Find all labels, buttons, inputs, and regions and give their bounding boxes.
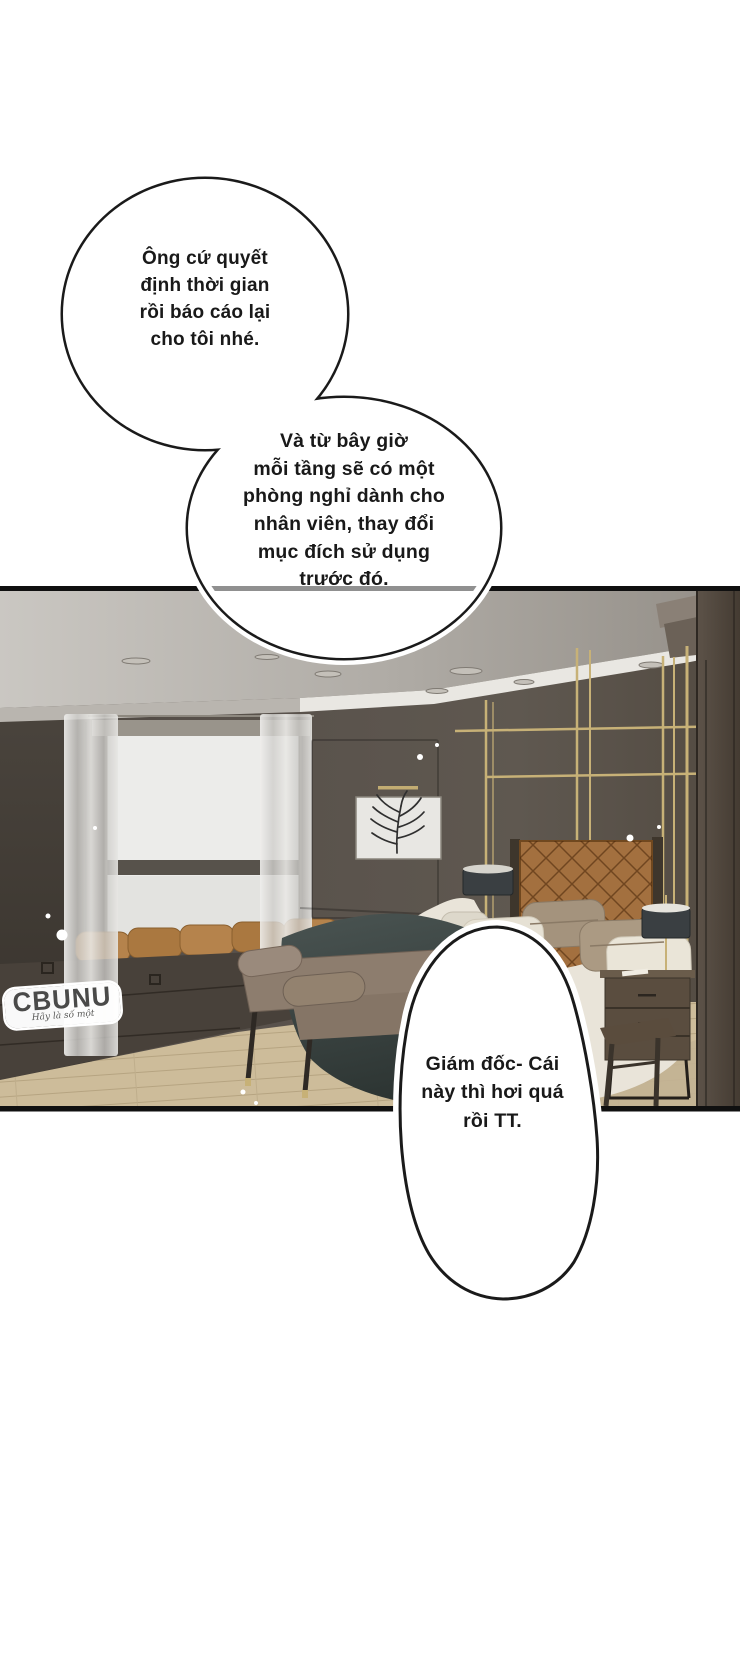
- speech-bubble-3-text: Giám đốc- Cái này thì hơi quá rồi TT.: [385, 1050, 600, 1135]
- picture-light: [378, 786, 418, 790]
- speech-bubble-1-text: Ông cứ quyết định thời gian rồi báo cáo …: [70, 246, 340, 354]
- framed-plant-artwork: [356, 786, 441, 859]
- panel-border-bottom: [0, 1106, 740, 1112]
- speech-bubble-2-text: Và từ bây giờ mỗi tầng sẽ có một phòng n…: [204, 428, 484, 594]
- watermark-sticker: CBUNU Hãy là số một: [4, 982, 121, 1029]
- wall-lamp-left: [463, 865, 513, 896]
- wall-pillar: [696, 591, 740, 1106]
- webtoon-page: Ông cứ quyết định thời gian rồi báo cáo …: [0, 0, 740, 1663]
- bedroom-scene: [0, 586, 740, 1108]
- watermark-brand: CBUNU: [12, 982, 113, 1017]
